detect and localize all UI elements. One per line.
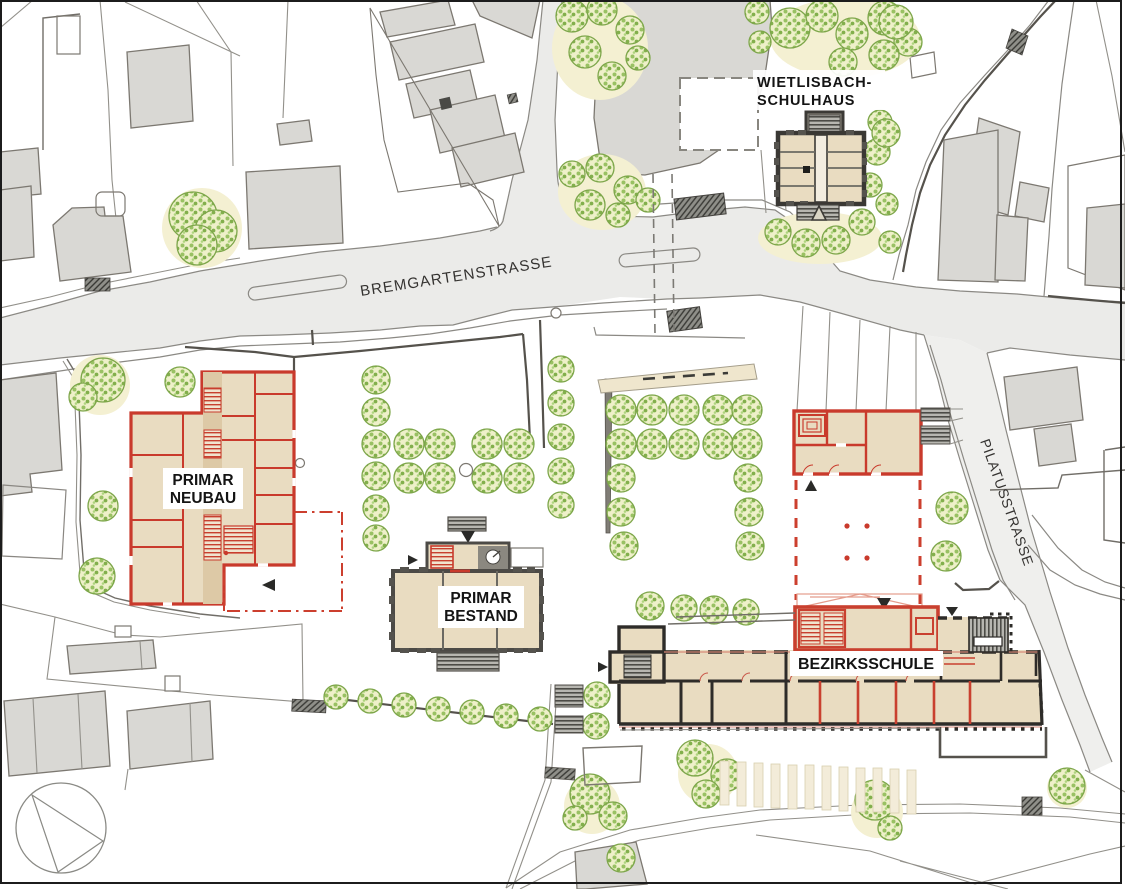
svg-text:BESTAND: BESTAND xyxy=(444,608,518,625)
svg-text:WIETLISBACH-: WIETLISBACH- xyxy=(757,75,872,91)
svg-text:PRIMAR: PRIMAR xyxy=(172,472,233,489)
svg-text:BEZIRKSSCHULE: BEZIRKSSCHULE xyxy=(798,656,934,673)
svg-text:PRIMAR: PRIMAR xyxy=(450,590,511,607)
svg-text:NEUBAU: NEUBAU xyxy=(170,490,236,507)
svg-text:SCHULHAUS: SCHULHAUS xyxy=(757,93,855,109)
